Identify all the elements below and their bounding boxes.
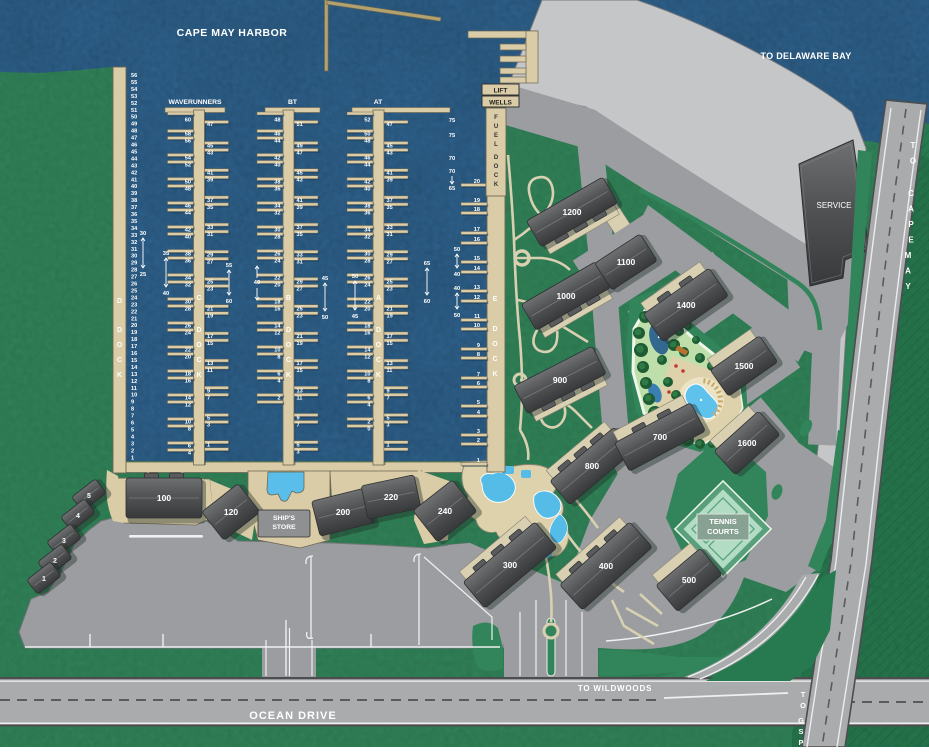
svg-text:1: 1 [207, 443, 210, 449]
svg-text:24: 24 [185, 331, 192, 337]
svg-text:33: 33 [207, 225, 213, 231]
svg-text:TO WILDWOODS: TO WILDWOODS [578, 684, 652, 693]
svg-text:18: 18 [364, 324, 370, 330]
svg-text:42: 42 [274, 156, 280, 162]
svg-text:9: 9 [131, 400, 134, 406]
svg-text:100: 100 [157, 493, 171, 503]
svg-text:7: 7 [297, 423, 300, 429]
svg-text:10: 10 [364, 372, 370, 378]
svg-text:2: 2 [131, 448, 134, 454]
svg-text:40: 40 [274, 163, 280, 169]
svg-text:31: 31 [297, 259, 303, 265]
svg-text:1500: 1500 [735, 361, 754, 371]
svg-text:C: C [492, 356, 497, 363]
svg-text:51: 51 [131, 108, 137, 114]
svg-text:33: 33 [131, 233, 137, 239]
svg-text:50: 50 [454, 313, 460, 319]
svg-text:35: 35 [207, 205, 213, 211]
svg-text:16: 16 [185, 379, 191, 385]
svg-text:WELLS: WELLS [489, 100, 512, 107]
svg-text:25: 25 [207, 280, 213, 286]
svg-text:3: 3 [477, 429, 480, 435]
svg-text:20: 20 [474, 179, 480, 185]
svg-text:46: 46 [185, 204, 191, 210]
svg-text:29: 29 [131, 261, 137, 267]
svg-text:47: 47 [387, 122, 393, 128]
svg-text:40: 40 [364, 187, 370, 193]
svg-text:41: 41 [207, 171, 213, 177]
svg-text:23: 23 [131, 302, 137, 308]
svg-text:47: 47 [207, 122, 213, 128]
svg-text:9: 9 [297, 416, 300, 422]
svg-text:1400: 1400 [677, 300, 696, 310]
svg-text:5: 5 [207, 416, 210, 422]
svg-text:WAVERUNNERS: WAVERUNNERS [168, 99, 222, 106]
svg-text:5: 5 [477, 400, 480, 406]
svg-text:36: 36 [274, 187, 280, 193]
svg-text:3: 3 [131, 441, 134, 447]
svg-text:48: 48 [185, 187, 191, 193]
svg-text:27: 27 [131, 275, 137, 281]
svg-text:40: 40 [163, 291, 169, 297]
svg-text:O: O [376, 342, 382, 349]
svg-text:56: 56 [131, 73, 137, 79]
svg-text:C: C [908, 189, 914, 198]
svg-text:400: 400 [599, 561, 613, 571]
svg-text:37: 37 [207, 198, 213, 204]
svg-text:50: 50 [185, 180, 191, 186]
svg-text:3: 3 [62, 538, 66, 545]
svg-text:K: K [117, 372, 122, 379]
svg-text:35: 35 [387, 205, 393, 211]
svg-text:D: D [117, 298, 122, 305]
svg-text:38: 38 [274, 180, 280, 186]
svg-text:Y: Y [905, 282, 911, 291]
svg-text:43: 43 [297, 178, 303, 184]
svg-text:38: 38 [185, 252, 191, 258]
svg-text:32: 32 [274, 211, 280, 217]
svg-text:45: 45 [387, 144, 393, 150]
svg-text:20: 20 [364, 307, 370, 313]
svg-text:8: 8 [367, 379, 370, 385]
svg-text:41: 41 [297, 198, 303, 204]
svg-text:28: 28 [131, 268, 137, 274]
svg-text:P: P [798, 738, 803, 747]
svg-text:31: 31 [207, 232, 213, 238]
svg-text:32: 32 [131, 240, 137, 246]
svg-text:T: T [801, 690, 806, 699]
svg-text:26: 26 [185, 324, 191, 330]
svg-text:60: 60 [424, 299, 430, 305]
svg-text:25: 25 [297, 307, 303, 313]
svg-text:65: 65 [449, 186, 456, 192]
svg-text:12: 12 [274, 331, 280, 337]
svg-text:43: 43 [387, 151, 393, 157]
svg-text:D: D [117, 327, 122, 334]
svg-text:34: 34 [131, 226, 138, 232]
svg-text:O: O [286, 342, 292, 349]
svg-text:10: 10 [274, 348, 280, 354]
svg-text:50: 50 [322, 315, 328, 321]
svg-text:51: 51 [297, 122, 303, 128]
svg-text:49: 49 [131, 122, 137, 128]
svg-text:14: 14 [364, 348, 371, 354]
svg-text:1600: 1600 [738, 438, 757, 448]
svg-text:37: 37 [131, 205, 137, 211]
svg-text:25: 25 [131, 288, 137, 294]
svg-text:0: 0 [367, 427, 370, 433]
svg-text:23: 23 [207, 287, 213, 293]
svg-text:41: 41 [387, 171, 393, 177]
svg-text:10: 10 [474, 323, 480, 329]
svg-text:C: C [196, 357, 201, 364]
svg-text:18: 18 [474, 207, 480, 213]
svg-text:A: A [905, 267, 911, 276]
svg-text:17: 17 [131, 344, 137, 350]
svg-text:32: 32 [185, 283, 191, 289]
svg-text:30: 30 [185, 300, 191, 306]
svg-text:1: 1 [131, 455, 134, 461]
svg-text:38: 38 [364, 204, 370, 210]
svg-text:800: 800 [585, 461, 599, 471]
svg-text:26: 26 [131, 282, 137, 288]
svg-text:50: 50 [131, 115, 137, 121]
svg-text:11: 11 [474, 314, 480, 320]
svg-text:28: 28 [364, 259, 370, 265]
svg-text:35: 35 [131, 219, 137, 225]
svg-text:44: 44 [131, 156, 138, 162]
svg-text:D: D [196, 327, 201, 334]
svg-text:O: O [196, 342, 202, 349]
svg-text:42: 42 [364, 180, 370, 186]
svg-text:41: 41 [131, 177, 137, 183]
svg-text:18: 18 [274, 300, 280, 306]
svg-text:60: 60 [226, 299, 232, 305]
svg-text:5: 5 [87, 493, 91, 500]
svg-text:32: 32 [364, 235, 370, 241]
svg-text:T: T [911, 141, 916, 150]
svg-text:24: 24 [274, 259, 281, 265]
svg-text:40: 40 [454, 272, 460, 278]
svg-text:33: 33 [297, 252, 303, 258]
svg-text:10: 10 [131, 393, 137, 399]
svg-text:15: 15 [297, 368, 303, 374]
svg-text:39: 39 [207, 178, 213, 184]
svg-text:12: 12 [131, 379, 137, 385]
svg-text:3: 3 [297, 450, 300, 456]
svg-text:11: 11 [131, 386, 137, 392]
svg-text:16: 16 [364, 331, 370, 337]
svg-text:17: 17 [474, 227, 480, 233]
svg-text:31: 31 [387, 232, 393, 238]
svg-text:O: O [800, 701, 806, 710]
svg-text:31: 31 [131, 247, 137, 253]
svg-text:19: 19 [131, 330, 137, 336]
svg-text:28: 28 [274, 235, 280, 241]
svg-text:15: 15 [387, 341, 393, 347]
svg-text:19: 19 [474, 198, 480, 204]
svg-text:G: G [798, 716, 804, 725]
svg-text:16: 16 [474, 237, 480, 243]
svg-text:AT: AT [374, 99, 383, 106]
svg-text:11: 11 [387, 368, 393, 374]
svg-text:A: A [376, 295, 381, 302]
svg-text:15: 15 [131, 358, 137, 364]
svg-text:48: 48 [274, 118, 280, 124]
svg-text:12: 12 [185, 403, 191, 409]
svg-text:700: 700 [653, 432, 667, 442]
svg-text:6: 6 [367, 396, 370, 402]
svg-text:3: 3 [207, 423, 210, 429]
svg-text:40: 40 [131, 184, 137, 190]
svg-text:56: 56 [185, 139, 191, 145]
svg-text:8: 8 [277, 355, 280, 361]
svg-text:40: 40 [454, 286, 460, 292]
svg-text:B: B [286, 295, 291, 302]
svg-text:45: 45 [297, 171, 303, 177]
svg-text:34: 34 [274, 204, 281, 210]
svg-text:46: 46 [274, 132, 280, 138]
svg-text:6: 6 [477, 381, 480, 387]
svg-text:39: 39 [297, 205, 303, 211]
svg-text:C: C [494, 173, 499, 179]
svg-text:43: 43 [131, 163, 137, 169]
svg-text:44: 44 [185, 211, 192, 217]
svg-text:34: 34 [185, 276, 192, 282]
svg-text:29: 29 [387, 252, 393, 258]
svg-text:26: 26 [274, 252, 280, 258]
svg-text:13: 13 [207, 361, 213, 367]
svg-text:1000: 1000 [557, 291, 576, 301]
svg-text:5: 5 [297, 443, 300, 449]
svg-text:29: 29 [207, 252, 213, 258]
svg-text:17: 17 [297, 361, 303, 367]
svg-text:21: 21 [297, 334, 303, 340]
svg-text:1: 1 [387, 443, 390, 449]
svg-text:L: L [494, 142, 498, 148]
svg-text:19: 19 [387, 314, 393, 320]
svg-text:900: 900 [553, 375, 567, 385]
svg-text:4: 4 [76, 513, 80, 520]
svg-text:6: 6 [188, 444, 191, 450]
svg-text:52: 52 [185, 163, 191, 169]
svg-text:22: 22 [185, 348, 191, 354]
svg-text:53: 53 [131, 94, 137, 100]
svg-text:16: 16 [131, 351, 137, 357]
svg-text:O: O [117, 342, 123, 349]
svg-text:K: K [196, 372, 201, 379]
svg-text:2: 2 [277, 396, 280, 402]
svg-text:26: 26 [364, 276, 370, 282]
svg-text:18: 18 [131, 337, 137, 343]
svg-text:240: 240 [438, 506, 452, 516]
svg-text:TO DELAWARE BAY: TO DELAWARE BAY [760, 51, 851, 61]
svg-text:24: 24 [364, 283, 371, 289]
svg-text:10: 10 [185, 420, 191, 426]
svg-text:47: 47 [131, 136, 137, 142]
svg-text:20: 20 [131, 323, 137, 329]
svg-text:25: 25 [387, 280, 393, 286]
svg-text:1200: 1200 [563, 207, 582, 217]
svg-text:11: 11 [207, 368, 213, 374]
svg-text:SHIP'S: SHIP'S [273, 515, 295, 522]
svg-text:14: 14 [274, 324, 281, 330]
svg-text:52: 52 [364, 118, 370, 124]
svg-text:BT: BT [288, 99, 298, 106]
svg-text:1100: 1100 [617, 257, 636, 267]
svg-text:O: O [492, 341, 498, 348]
svg-text:54: 54 [185, 156, 192, 162]
svg-text:35: 35 [163, 251, 170, 257]
svg-text:1: 1 [477, 458, 480, 464]
svg-text:9: 9 [207, 388, 210, 394]
svg-text:12: 12 [474, 295, 480, 301]
svg-text:8: 8 [131, 407, 134, 413]
svg-text:30: 30 [364, 252, 370, 258]
svg-text:42: 42 [185, 228, 191, 234]
svg-text:22: 22 [364, 300, 370, 306]
svg-text:O: O [910, 157, 916, 166]
svg-text:30: 30 [274, 228, 280, 234]
svg-text:27: 27 [387, 259, 393, 265]
svg-text:13: 13 [131, 372, 137, 378]
svg-text:58: 58 [185, 132, 191, 138]
svg-text:37: 37 [297, 225, 303, 231]
svg-text:19: 19 [207, 314, 213, 320]
svg-text:3: 3 [387, 423, 390, 429]
svg-text:12: 12 [364, 355, 370, 361]
svg-text:5: 5 [387, 416, 390, 422]
svg-text:46: 46 [131, 143, 137, 149]
svg-text:45: 45 [322, 276, 329, 282]
svg-text:19: 19 [297, 341, 303, 347]
svg-text:O: O [494, 164, 499, 170]
svg-text:K: K [376, 372, 381, 379]
svg-text:2: 2 [367, 420, 370, 426]
svg-text:M: M [905, 251, 912, 260]
svg-text:8: 8 [188, 427, 191, 433]
svg-text:44: 44 [364, 163, 371, 169]
svg-text:25: 25 [140, 272, 147, 278]
svg-text:75: 75 [449, 133, 456, 139]
svg-text:7: 7 [387, 395, 390, 401]
svg-text:9: 9 [477, 343, 480, 349]
svg-text:C: C [196, 295, 201, 302]
svg-text:21: 21 [387, 307, 393, 313]
svg-text:49: 49 [297, 144, 303, 150]
svg-text:50: 50 [364, 132, 370, 138]
svg-text:8: 8 [477, 352, 480, 358]
svg-text:E: E [908, 236, 914, 245]
svg-text:44: 44 [274, 139, 281, 145]
svg-text:39: 39 [131, 191, 137, 197]
svg-text:120: 120 [224, 507, 238, 517]
svg-text:11: 11 [297, 395, 303, 401]
svg-text:33: 33 [387, 225, 393, 231]
svg-text:E: E [494, 133, 498, 139]
svg-text:23: 23 [387, 287, 393, 293]
svg-text:40: 40 [185, 235, 191, 241]
svg-text:17: 17 [387, 334, 393, 340]
svg-text:21: 21 [207, 307, 213, 313]
svg-text:15: 15 [207, 341, 213, 347]
svg-text:D: D [376, 327, 381, 334]
svg-text:48: 48 [364, 139, 370, 145]
svg-text:9: 9 [387, 388, 390, 394]
svg-text:30: 30 [131, 254, 137, 260]
svg-text:6: 6 [277, 372, 280, 378]
svg-text:22: 22 [131, 309, 137, 315]
svg-text:35: 35 [297, 232, 303, 238]
svg-text:40: 40 [254, 280, 260, 286]
svg-text:13: 13 [387, 361, 393, 367]
svg-text:60: 60 [185, 118, 191, 124]
svg-text:38: 38 [131, 198, 137, 204]
svg-text:43: 43 [207, 151, 213, 157]
svg-text:16: 16 [274, 307, 280, 313]
svg-text:K: K [286, 372, 291, 379]
svg-text:U: U [494, 124, 498, 130]
svg-text:14: 14 [131, 365, 138, 371]
svg-text:29: 29 [297, 280, 303, 286]
svg-text:15: 15 [474, 256, 480, 262]
svg-text:48: 48 [131, 129, 137, 135]
svg-text:14: 14 [474, 266, 481, 272]
svg-text:CAPE MAY HARBOR: CAPE MAY HARBOR [177, 27, 288, 39]
svg-text:5: 5 [131, 427, 134, 433]
svg-text:7: 7 [131, 414, 134, 420]
svg-text:27: 27 [207, 259, 213, 265]
svg-text:S: S [798, 727, 803, 736]
svg-text:D: D [286, 327, 291, 334]
svg-text:70: 70 [449, 169, 455, 175]
svg-text:P: P [908, 220, 914, 229]
svg-text:45: 45 [131, 149, 137, 155]
svg-text:14: 14 [185, 396, 192, 402]
svg-text:55: 55 [226, 263, 233, 269]
svg-text:1: 1 [42, 576, 46, 583]
svg-text:13: 13 [474, 285, 480, 291]
svg-text:C: C [117, 357, 122, 364]
svg-text:13: 13 [297, 388, 303, 394]
svg-text:C: C [286, 357, 291, 364]
svg-text:52: 52 [131, 101, 137, 107]
svg-text:7: 7 [477, 372, 480, 378]
svg-text:C: C [376, 357, 381, 364]
svg-text:39: 39 [387, 178, 393, 184]
svg-text:47: 47 [297, 151, 303, 157]
svg-text:36: 36 [185, 259, 191, 265]
svg-text:220: 220 [384, 492, 398, 502]
svg-text:E: E [493, 296, 498, 303]
svg-text:46: 46 [364, 156, 370, 162]
svg-text:300: 300 [503, 560, 517, 570]
svg-text:A: A [908, 205, 914, 214]
svg-text:7: 7 [207, 395, 210, 401]
svg-text:45: 45 [352, 314, 359, 320]
svg-text:42: 42 [131, 170, 137, 176]
svg-text:18: 18 [185, 372, 191, 378]
svg-text:20: 20 [274, 283, 280, 289]
svg-text:SERVICE: SERVICE [817, 201, 852, 210]
svg-text:45: 45 [207, 144, 213, 150]
svg-text:STORE: STORE [272, 524, 296, 531]
svg-text:50: 50 [352, 274, 358, 280]
svg-text:500: 500 [682, 575, 696, 585]
svg-text:22: 22 [274, 276, 280, 282]
svg-text:23: 23 [297, 314, 303, 320]
svg-text:70: 70 [449, 156, 455, 162]
